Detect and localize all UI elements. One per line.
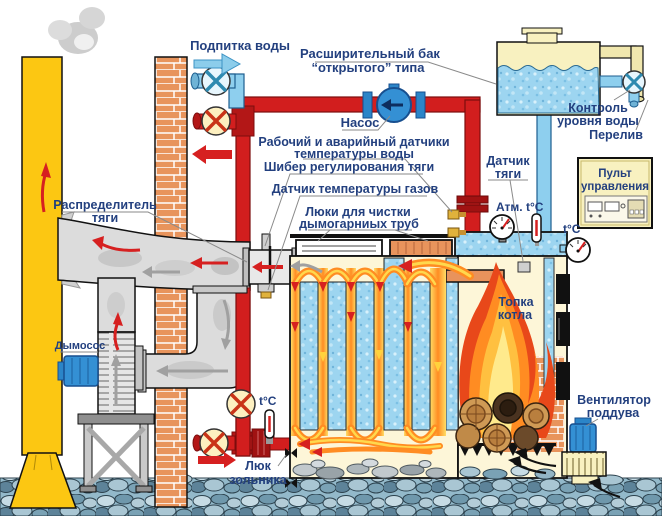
distributor-bottom-nozzle [258,284,274,292]
diagram-canvas: Подпитка воды Расширительный бак “открыт… [0,0,662,516]
label-hatches-2: дымогарниых труб [299,217,419,231]
label-pressure-gauge: Атм. [496,200,523,214]
smoke-wisp [211,257,239,275]
pipe-end-cap [193,113,201,129]
water-temp-sensor-emergency [448,228,459,237]
supply-arrow-shaft [206,150,232,159]
label-overflow: Перелив [589,128,643,142]
label-temp-3: t°C [259,394,277,408]
label-panel-1: Пульт [598,168,632,180]
exhauster-motor [64,356,98,386]
label-panel-2: управления [581,181,649,193]
pipe-flange [457,196,488,203]
firebox-door-lower [556,362,570,400]
pipe-flange [457,205,488,212]
water-column [412,282,430,430]
label-firebox-2: котла [498,308,533,322]
boiler [285,232,570,488]
smoke-wisp [107,292,125,318]
firebox-door-upper [556,274,570,304]
log [514,426,538,450]
pebble-ground [0,478,662,516]
stand-top [78,414,154,424]
label-pump: Насос [341,115,380,130]
gauge-pivot [577,250,580,253]
chimney-base [10,453,76,508]
sensor-stem [459,230,466,235]
panel-switch [635,210,639,214]
ash-stone [316,467,344,479]
firebox-door-middle [556,312,570,346]
cleaning-hatch-right [390,240,452,256]
flame-tube [346,268,356,436]
cleaning-hatch-left [296,240,382,256]
boiler-system-diagram: Подпитка воды Расширительный бак “открыт… [0,0,662,516]
pit-pebble [483,469,507,479]
water-column [328,282,346,430]
label-ash-1: Люк [245,459,271,473]
smoke-puff [74,34,94,50]
hatch-top-bar [290,234,455,238]
label-expansion-tank-2: “открытого” типа [312,60,426,75]
panel-switch [640,210,644,214]
fan-housing [562,452,606,476]
nozzle-tip [630,101,638,107]
label-expansion-tank-1: Расширительный бак [300,46,440,61]
ash-stone [426,468,446,478]
log-ring [500,400,516,416]
firebox-water-divider [446,258,458,430]
water-temp-sensor-working [448,210,459,219]
ground [0,474,662,516]
return-thermometer [265,410,274,444]
panel-knob [590,215,593,218]
supply-horizontal-pipe [243,97,480,112]
main-flue-duct [58,218,250,290]
label-exhauster: Дымосос [55,340,106,352]
pump-flange [416,92,425,118]
gauge-pivot [501,227,504,230]
label-distributor-1: Распределитель [53,198,157,212]
label-water-sensors-2: температуры воды [294,147,414,161]
flame-tube [291,268,300,436]
label-distributor-2: тяги [92,211,118,225]
label-draft-sensor-1: Датчик [486,154,530,168]
draft-sensor-body [518,262,530,272]
label-firebox-1: Топка [498,295,534,309]
water-divider-column [384,258,404,430]
ash-stone [311,460,325,468]
label-ash-2: зольника [229,473,287,487]
label-fan-1: Вентилятор [577,393,651,407]
label-draft-sensor-2: тяги [495,167,521,181]
makeup-arrow-shaft [194,60,222,68]
ash-stone [362,459,378,467]
smoke-wisp [155,260,195,276]
flame-tube [404,268,412,436]
stand-foot [136,486,152,492]
smoke-puff [48,20,72,40]
tank-inlet-neck [527,33,557,43]
exhauster-flange [135,346,143,390]
water-column [300,282,318,430]
label-water-makeup: Подпитка воды [190,38,290,53]
blower-fan [562,418,606,484]
makeup-arrow-head [222,54,240,74]
gas-temp-sensor-fitting [261,292,271,298]
label-level-1: Контроль [568,101,628,115]
jacket-thermometer [532,214,541,246]
distributor-flange-left [243,248,249,286]
panel-display [588,202,602,211]
return-arrow-shaft [198,456,224,464]
sensor-stem [459,212,466,217]
chimney-stack [22,57,62,455]
pit-pebble [535,469,555,479]
leader-level-control [614,90,630,100]
label-temp-2: t°C [563,222,581,236]
ash-stone [372,466,398,478]
water-column [356,282,374,430]
log-ring [529,409,543,423]
supply-arrow-head [192,145,206,164]
panel-display [605,202,619,211]
panel-switch [630,210,634,214]
panel-knob [599,215,602,218]
ash-stone [419,461,431,468]
pit-pebble [460,467,480,477]
pipe-end-cap [191,73,199,89]
label-gas-sensor: Датчик температуры газов [272,182,439,196]
level-control-stub [600,76,622,87]
stand-foot [80,486,96,492]
flame-tube [430,268,446,436]
duct-junction-flange [193,286,247,293]
supply-riser-pipe-front [236,288,250,456]
label-damper: Шибер регулирования тяги [264,160,434,174]
panel-switch-block [628,200,644,218]
label-level-2: уровня воды [557,114,639,128]
smoke-puff [79,7,105,29]
label-temp-1: t°C [526,200,544,214]
label-fan-2: поддува [587,406,641,420]
